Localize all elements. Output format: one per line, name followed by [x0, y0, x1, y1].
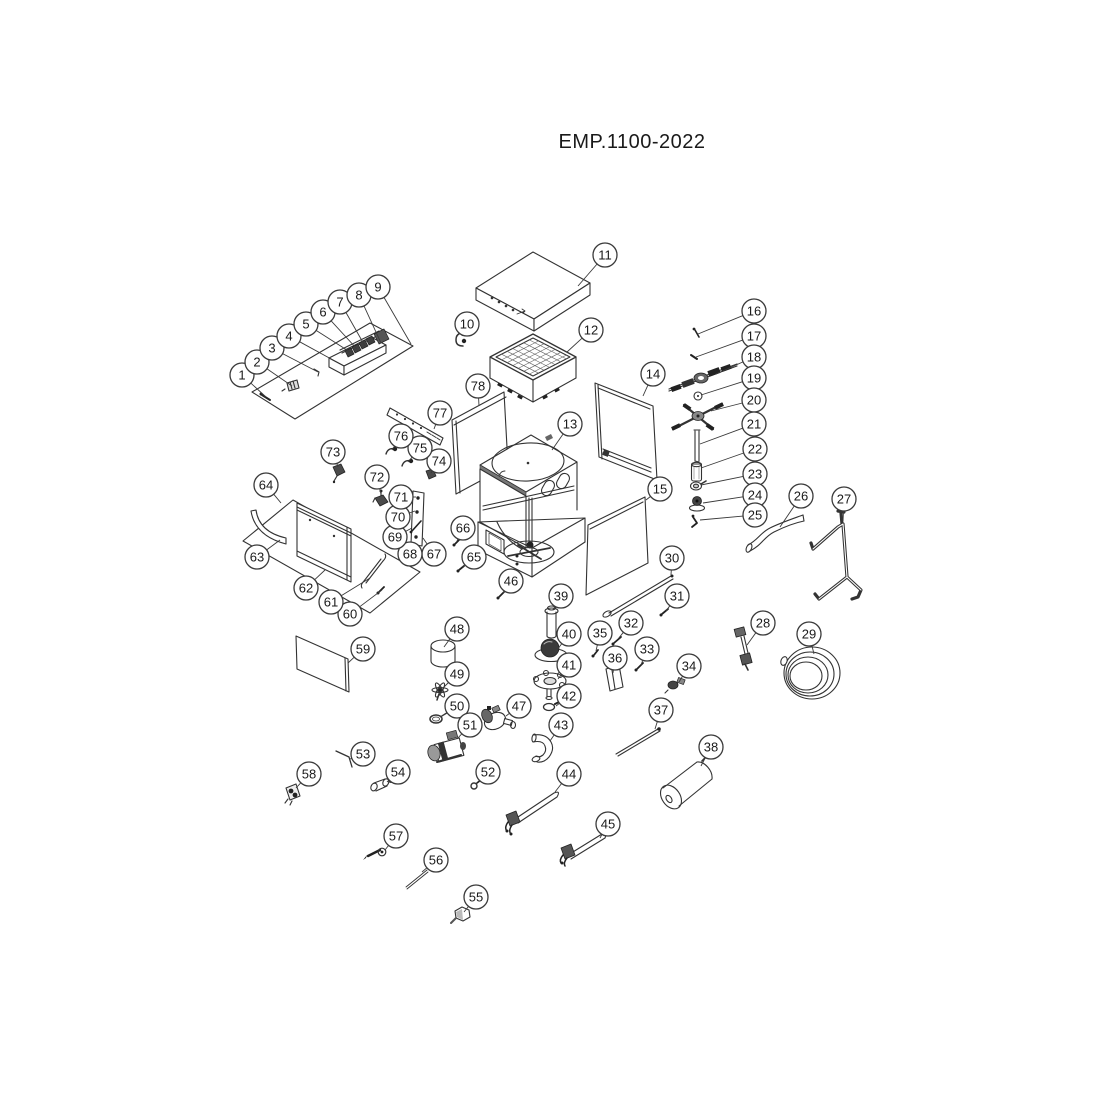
svg-text:31: 31 [670, 589, 684, 604]
svg-text:40: 40 [562, 627, 576, 642]
callout-54: 54 [386, 760, 410, 784]
svg-text:7: 7 [336, 295, 343, 310]
svg-text:23: 23 [748, 467, 762, 482]
parts-diagram-page: EMP.1100-2022 12345678910111213141516171… [0, 0, 1100, 1100]
callout-40: 40 [557, 622, 581, 650]
svg-text:78: 78 [471, 379, 485, 394]
svg-text:33: 33 [640, 642, 654, 657]
part-fitting-23 [691, 481, 707, 490]
svg-text:47: 47 [512, 699, 526, 714]
part-rod-37 [616, 727, 661, 756]
callout-37: 37 [649, 698, 673, 729]
callout-41: 41 [557, 653, 581, 679]
callout-13: 13 [552, 412, 582, 450]
part-elbow-hose-43 [531, 734, 552, 763]
svg-text:2: 2 [253, 355, 260, 370]
svg-text:45: 45 [601, 817, 615, 832]
svg-text:5: 5 [302, 317, 309, 332]
svg-text:20: 20 [747, 393, 761, 408]
svg-text:60: 60 [343, 607, 357, 622]
svg-text:12: 12 [584, 323, 598, 338]
svg-text:24: 24 [748, 488, 762, 503]
callout-58: 58 [296, 762, 321, 788]
callout-56: 56 [422, 848, 448, 872]
part-door-spring-61 [361, 554, 385, 588]
part-hose-clamp-42 [544, 702, 560, 711]
part-screw-46 [497, 592, 505, 600]
callout-73: 73 [321, 440, 345, 467]
callout-48: 48 [444, 617, 469, 647]
svg-text:17: 17 [747, 329, 761, 344]
callout-63: 63 [245, 540, 280, 569]
svg-text:56: 56 [429, 853, 443, 868]
part-right-rear-panel-14 [595, 383, 657, 480]
svg-text:18: 18 [747, 350, 761, 365]
svg-text:13: 13 [563, 417, 577, 432]
svg-text:66: 66 [456, 521, 470, 536]
callout-43: 43 [549, 713, 573, 741]
callout-26: 26 [780, 484, 813, 527]
svg-text:68: 68 [403, 547, 417, 562]
svg-text:15: 15 [653, 482, 667, 497]
svg-text:46: 46 [504, 574, 518, 589]
callout-64: 64 [254, 473, 281, 503]
part-sleeve-22 [692, 462, 702, 481]
part-roller-bracket-58 [285, 784, 300, 805]
svg-text:49: 49 [450, 667, 464, 682]
svg-text:76: 76 [394, 429, 408, 444]
part-bolt-25 [692, 515, 697, 527]
svg-text:58: 58 [302, 767, 316, 782]
part-impeller-49 [432, 682, 448, 700]
svg-text:61: 61 [324, 595, 338, 610]
callout-52: 52 [476, 760, 500, 784]
svg-text:42: 42 [562, 689, 576, 704]
svg-text:54: 54 [391, 765, 405, 780]
part-nut-24 [690, 497, 705, 512]
svg-text:74: 74 [432, 454, 446, 469]
part-top-cover-11 [476, 252, 590, 331]
svg-text:37: 37 [654, 703, 668, 718]
svg-text:70: 70 [391, 510, 405, 525]
part-wire-clip-75 [402, 459, 413, 466]
part-basket-12 [490, 334, 576, 402]
callout-49: 49 [443, 662, 469, 688]
svg-text:28: 28 [756, 616, 770, 631]
callout-10: 10 [455, 312, 479, 336]
svg-text:14: 14 [646, 367, 660, 382]
svg-text:51: 51 [463, 718, 477, 733]
svg-text:67: 67 [427, 547, 441, 562]
callout-46: 46 [499, 569, 523, 593]
svg-text:39: 39 [554, 589, 568, 604]
svg-text:65: 65 [467, 550, 481, 565]
callout-28: 28 [747, 611, 775, 645]
part-screw-32 [612, 637, 622, 646]
svg-text:73: 73 [326, 445, 340, 460]
callout-33: 33 [635, 637, 659, 665]
svg-text:52: 52 [481, 765, 495, 780]
callout-72: 72 [365, 465, 389, 494]
svg-text:59: 59 [356, 642, 370, 657]
part-upper-wash-arm-18 [669, 364, 737, 392]
svg-text:44: 44 [562, 767, 576, 782]
diagram-title: EMP.1100-2022 [559, 131, 706, 153]
callout-42: 42 [556, 684, 581, 708]
svg-text:62: 62 [299, 581, 313, 596]
callout-53: 53 [350, 742, 375, 766]
callout-66: 66 [451, 516, 475, 541]
callout-55: 55 [464, 885, 488, 912]
callout-34: 34 [677, 654, 701, 682]
part-rod-56 [406, 870, 428, 889]
svg-text:72: 72 [370, 470, 384, 485]
svg-text:22: 22 [748, 442, 762, 457]
callout-30: 30 [660, 546, 684, 575]
callout-15: 15 [646, 477, 672, 501]
part-shaft-21 [694, 430, 700, 462]
svg-text:32: 32 [624, 616, 638, 631]
part-screw-washer-57 [363, 848, 386, 860]
svg-text:30: 30 [665, 551, 679, 566]
part-boiler-tank-38 [656, 757, 712, 813]
svg-text:69: 69 [388, 530, 402, 545]
callout-11: 11 [578, 243, 617, 286]
svg-text:4: 4 [285, 329, 292, 344]
svg-text:16: 16 [747, 304, 761, 319]
svg-text:55: 55 [469, 890, 483, 905]
svg-text:3: 3 [268, 341, 275, 356]
part-door-panel-62 [297, 503, 351, 582]
svg-text:29: 29 [802, 627, 816, 642]
part-coiled-hose-29 [780, 647, 840, 699]
svg-text:71: 71 [394, 490, 408, 505]
part-standpipe-39 [545, 606, 558, 638]
part-screw-35 [592, 650, 599, 658]
part-stand-frame-27 [811, 511, 861, 599]
part-curved-gasket-63 [251, 510, 286, 544]
callout-77: 77 [428, 401, 452, 429]
svg-text:25: 25 [748, 508, 762, 523]
part-right-front-panel-15 [586, 497, 648, 595]
svg-text:36: 36 [608, 651, 622, 666]
svg-text:64: 64 [259, 478, 273, 493]
callout-65: 65 [462, 545, 486, 569]
callout-25: 25 [700, 503, 767, 527]
callout-32: 32 [618, 611, 643, 639]
svg-text:26: 26 [794, 489, 808, 504]
part-rod-53 [336, 751, 352, 767]
svg-text:9: 9 [374, 280, 381, 295]
callout-44: 44 [555, 762, 581, 792]
svg-text:75: 75 [413, 441, 427, 456]
svg-text:19: 19 [747, 371, 761, 386]
part-screw-16 [693, 328, 699, 337]
part-heating-element-44 [506, 792, 559, 835]
part-screw-66 [453, 540, 460, 547]
callout-47: 47 [506, 694, 531, 718]
svg-text:21: 21 [747, 417, 761, 432]
svg-text:38: 38 [704, 740, 718, 755]
svg-text:53: 53 [356, 747, 370, 762]
callout-51: 51 [457, 713, 482, 739]
callout-14: 14 [641, 362, 665, 396]
svg-text:27: 27 [837, 492, 851, 507]
part-lower-wash-arm-20 [671, 402, 724, 431]
svg-text:48: 48 [450, 622, 464, 637]
callout-35: 35 [588, 621, 612, 651]
svg-text:43: 43 [554, 718, 568, 733]
svg-text:41: 41 [562, 658, 576, 673]
svg-text:8: 8 [355, 288, 362, 303]
callout-31: 31 [665, 584, 689, 611]
svg-text:1: 1 [238, 368, 245, 383]
callout-20: 20 [711, 388, 766, 412]
callout-67: 67 [422, 538, 446, 566]
callout-23: 23 [701, 462, 767, 486]
part-wire-clip-76 [386, 447, 397, 454]
svg-text:77: 77 [433, 406, 447, 421]
part-bracket-73 [333, 464, 345, 483]
exploded-diagram: EMP.1100-2022 12345678910111213141516171… [0, 0, 1100, 1100]
svg-text:34: 34 [682, 659, 696, 674]
callout-27: 27 [832, 487, 856, 521]
callout-12: 12 [567, 318, 603, 352]
part-pressure-switch-28 [734, 627, 752, 670]
svg-text:35: 35 [593, 626, 607, 641]
callout-45: 45 [596, 812, 620, 838]
svg-text:50: 50 [450, 699, 464, 714]
svg-text:10: 10 [460, 317, 474, 332]
part-elbow-fitting-34 [665, 677, 685, 693]
part-panel-59 [296, 636, 349, 692]
svg-text:63: 63 [250, 550, 264, 565]
part-bearing-19 [694, 392, 702, 400]
part-screw-65 [457, 566, 465, 573]
svg-text:11: 11 [598, 248, 612, 263]
callout-57: 57 [384, 824, 408, 850]
part-cap-55 [451, 907, 470, 923]
callout-59: 59 [348, 637, 375, 663]
svg-text:6: 6 [319, 305, 326, 320]
part-heating-element-45 [560, 833, 606, 866]
svg-text:57: 57 [389, 829, 403, 844]
